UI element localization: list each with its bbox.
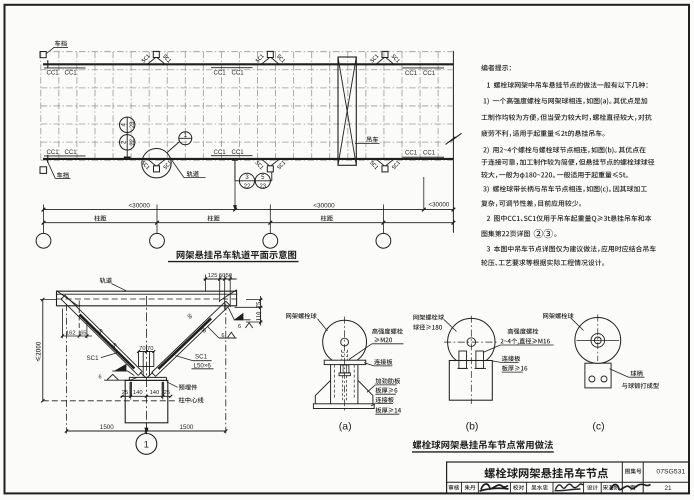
svg-text:CC1: CC1 — [65, 149, 78, 156]
svg-text:(c): (c) — [592, 421, 604, 433]
svg-text:<30000: <30000 — [128, 202, 150, 209]
svg-text:(b): (b) — [466, 421, 479, 433]
svg-text:140: 140 — [150, 390, 160, 396]
svg-text:25: 25 — [164, 390, 170, 396]
svg-text:CC1: CC1 — [214, 149, 227, 156]
svg-text:07SG531: 07SG531 — [656, 469, 685, 476]
svg-text:CC1: CC1 — [232, 149, 245, 156]
svg-text:SC1: SC1 — [87, 355, 100, 362]
svg-text:22: 22 — [244, 184, 251, 190]
svg-text:<30000: <30000 — [313, 202, 335, 209]
svg-text:6: 6 — [221, 333, 224, 339]
svg-text:125: 125 — [208, 273, 218, 279]
svg-text:70: 70 — [147, 346, 153, 352]
svg-text:1500: 1500 — [180, 424, 194, 431]
svg-text:162: 162 — [66, 330, 76, 336]
svg-text:SC1: SC1 — [195, 353, 208, 360]
svg-text:<30000: <30000 — [428, 202, 449, 209]
svg-text:22: 22 — [130, 138, 136, 145]
svg-text:6: 6 — [98, 375, 101, 381]
svg-text:50: 50 — [219, 273, 225, 279]
svg-text:23: 23 — [259, 184, 266, 190]
svg-text:21: 21 — [664, 485, 672, 492]
svg-text:140: 140 — [133, 390, 143, 396]
svg-text:CC1: CC1 — [405, 150, 418, 157]
svg-text:CC1: CC1 — [214, 69, 227, 76]
svg-text:CC1: CC1 — [423, 150, 436, 157]
svg-text:CC1: CC1 — [47, 149, 60, 156]
svg-text:50: 50 — [226, 273, 232, 279]
svg-text:CC1: CC1 — [65, 70, 78, 77]
svg-text:(a): (a) — [339, 421, 352, 433]
svg-text:CC1: CC1 — [405, 70, 418, 77]
svg-text:CC1: CC1 — [47, 70, 60, 77]
svg-text:1: 1 — [144, 438, 149, 449]
svg-text:23: 23 — [130, 121, 136, 128]
svg-text:CC1: CC1 — [232, 69, 245, 76]
svg-text:1500: 1500 — [100, 424, 114, 431]
svg-text:70: 70 — [139, 346, 145, 352]
svg-text:65: 65 — [80, 330, 86, 336]
svg-text:25: 25 — [122, 390, 128, 396]
svg-text:CC1: CC1 — [423, 70, 436, 77]
svg-text:1: 1 — [183, 132, 187, 139]
svg-text:6: 6 — [238, 324, 241, 330]
